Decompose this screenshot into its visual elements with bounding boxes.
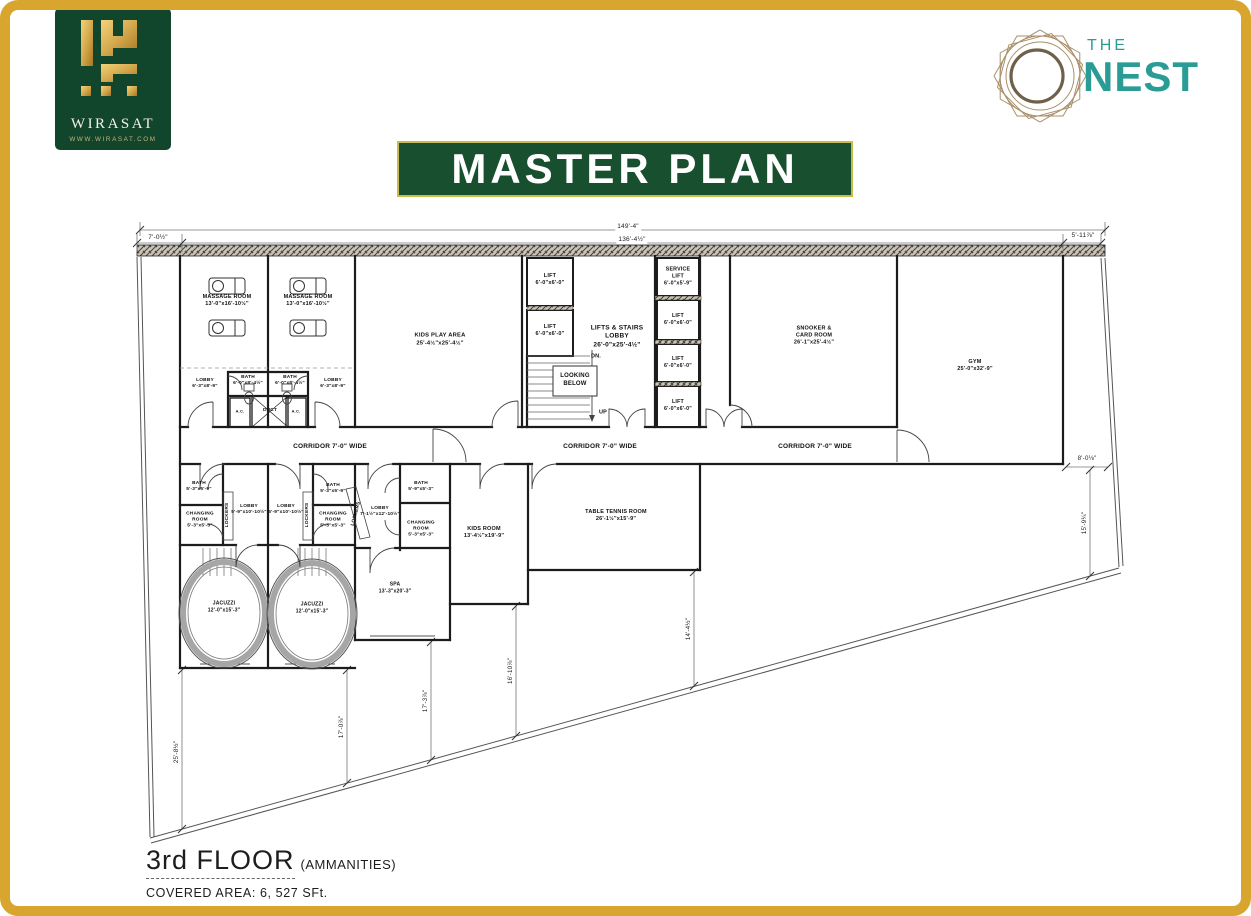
stair-arrowhead xyxy=(589,415,595,422)
floor-label: 3rd FLOOR xyxy=(146,845,295,879)
walls xyxy=(180,256,1063,668)
wirasat-name: WIRASAT xyxy=(71,116,155,133)
wirasat-website: WWW.WIRASAT.COM xyxy=(69,136,156,143)
wirasat-logo: WIRASAT WWW.WIRASAT.COM xyxy=(55,8,171,150)
property-boundary xyxy=(137,257,1123,843)
doors xyxy=(188,376,929,573)
locker-strips xyxy=(223,487,370,540)
dimension-ticks xyxy=(133,226,1112,833)
footer: 3rd FLOOR (AMMANITIES) COVERED AREA: 6, … xyxy=(146,845,396,900)
master-plan-banner: MASTER PLAN xyxy=(397,141,853,197)
looking-below-box xyxy=(553,366,597,396)
nest-word-nest: NEST xyxy=(1083,53,1199,101)
wirasat-calligraphy-icon xyxy=(77,20,149,106)
nest-logo: THE NEST xyxy=(975,15,1215,135)
dimension-lines xyxy=(137,222,1108,829)
exterior-wall-hatched xyxy=(137,245,1105,256)
master-plan-title: MASTER PLAN xyxy=(451,145,798,193)
floor-plan-svg xyxy=(0,0,1251,916)
floor-note: (AMMANITIES) xyxy=(301,857,397,872)
covered-area-label: COVERED AREA: 6, 527 SFt. xyxy=(146,886,396,900)
